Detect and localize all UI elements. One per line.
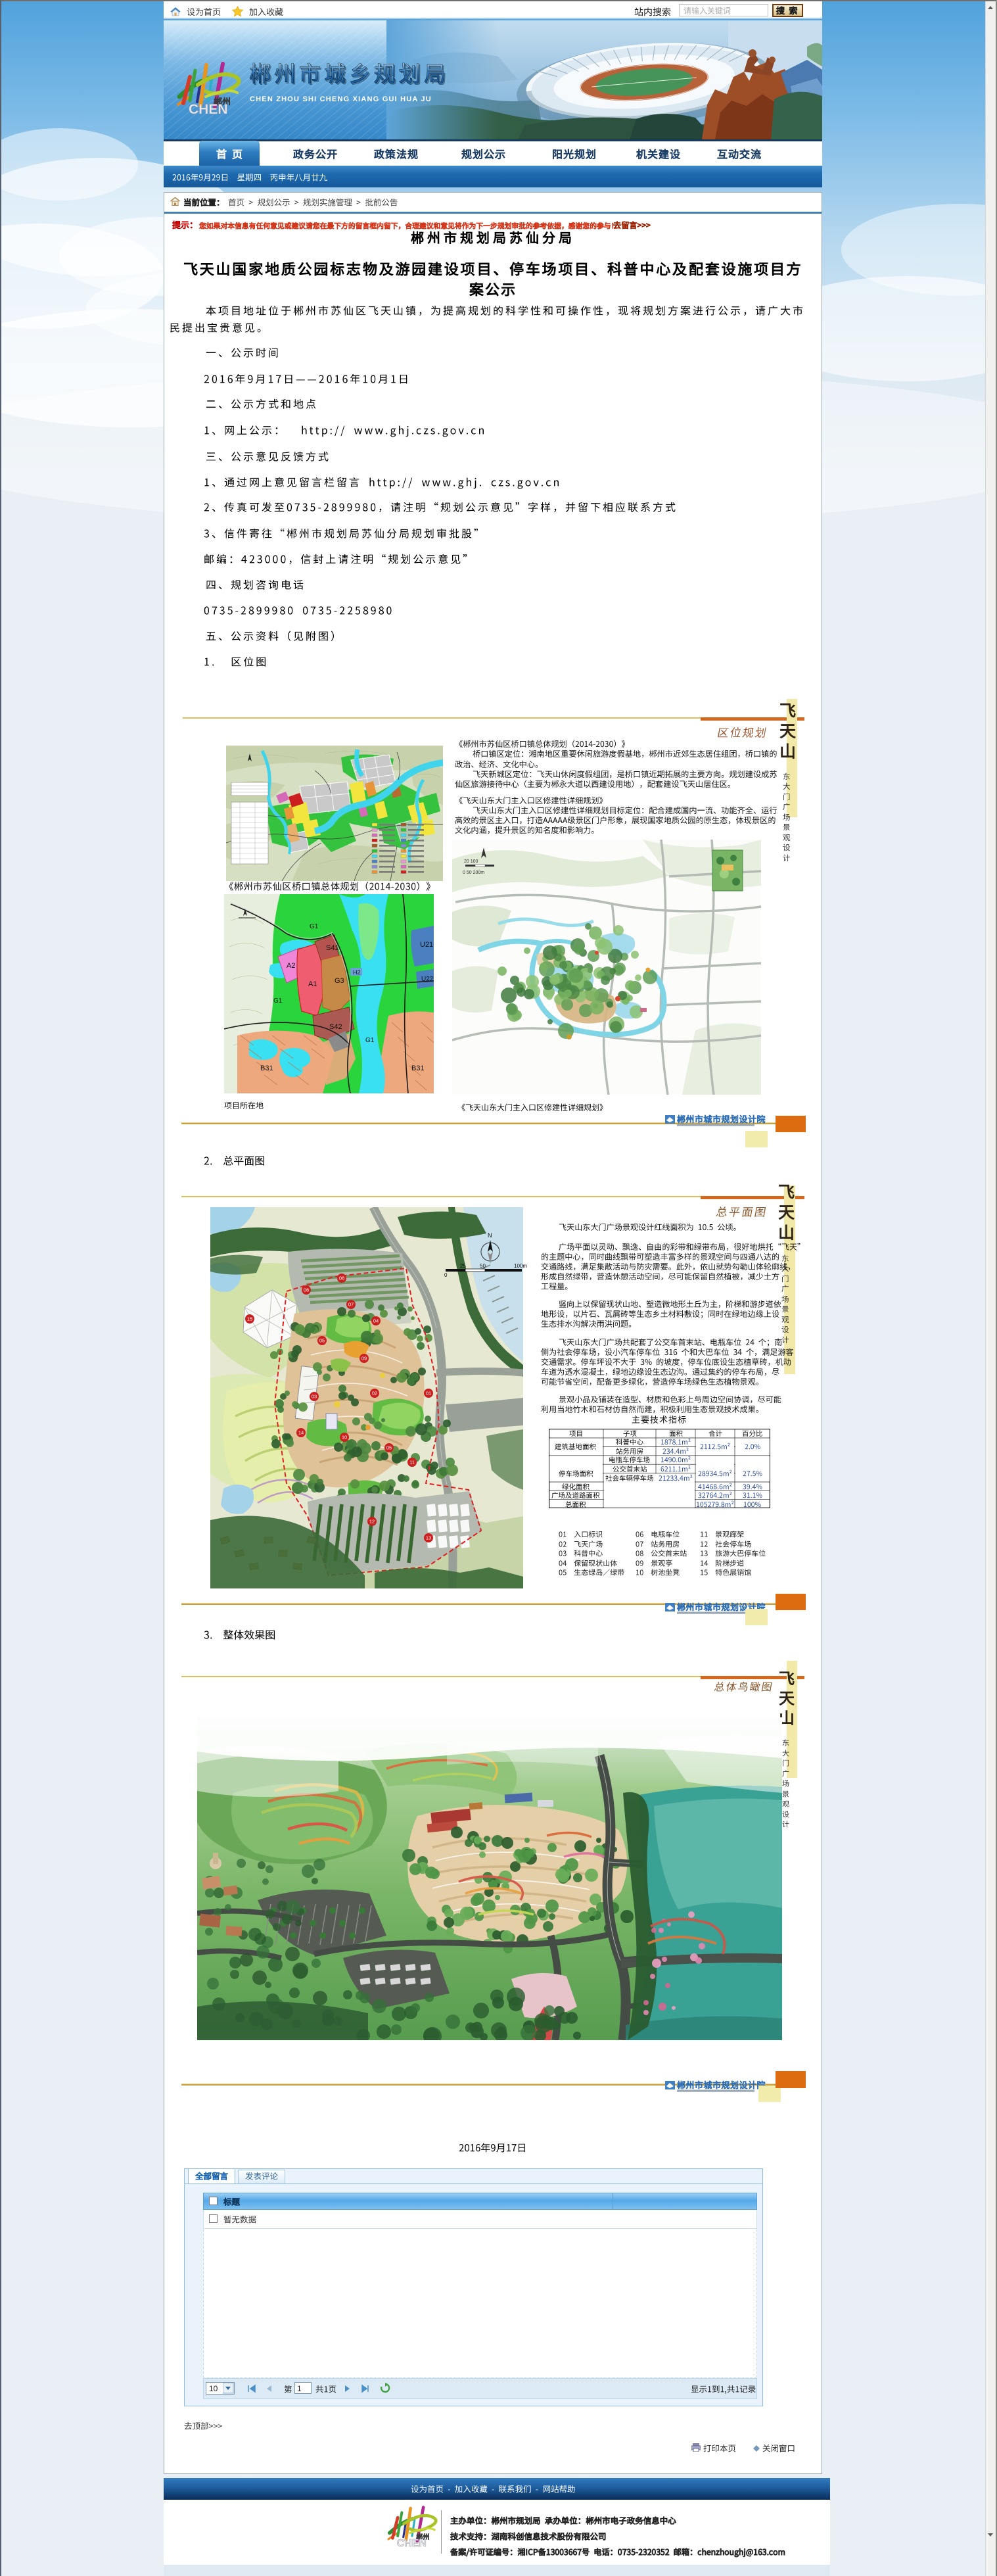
svg-text:11: 11 [409,1460,415,1466]
svg-text:U21: U21 [420,941,433,949]
svg-text:G1: G1 [365,1037,375,1044]
svg-text:25: 25 [460,1264,466,1269]
svg-text:05: 05 [386,1445,392,1451]
svg-text:05: 05 [319,1338,325,1344]
svg-text:09: 09 [361,1356,367,1362]
svg-text:G1: G1 [273,997,283,1005]
svg-text:15: 15 [247,1316,252,1322]
svg-text:CHEN: CHEN [189,102,228,117]
svg-text:B31: B31 [260,1064,273,1072]
svg-text:06: 06 [304,1287,309,1293]
svg-text:A2: A2 [287,962,295,970]
svg-text:04: 04 [373,1318,379,1324]
svg-text:H2: H2 [353,969,361,976]
svg-text:10: 10 [342,1435,347,1441]
svg-text:12: 12 [369,1519,375,1525]
svg-text:U22: U22 [421,976,434,983]
svg-text:01: 01 [426,1391,431,1396]
svg-text:14: 14 [298,1430,304,1436]
svg-text:02: 02 [372,1391,377,1396]
svg-text:A1: A1 [308,980,317,988]
svg-text:100m: 100m [514,1264,527,1269]
svg-text:08: 08 [339,1276,344,1281]
svg-text:20 100: 20 100 [464,859,478,864]
svg-text:0 50 200m: 0 50 200m [463,871,484,875]
svg-text:G1: G1 [310,923,319,930]
svg-text:S42: S42 [329,1023,342,1031]
svg-text:07: 07 [348,1302,354,1308]
svg-text:50: 50 [480,1264,486,1269]
svg-text:B31: B31 [411,1064,425,1072]
svg-text:CHEN: CHEN [397,2538,427,2549]
svg-text:03: 03 [312,1394,317,1400]
svg-text:G3: G3 [335,977,344,985]
svg-text:S41: S41 [326,944,339,952]
svg-text:13: 13 [426,1535,431,1541]
svg-text:0: 0 [444,1272,448,1278]
svg-text:N: N [488,1232,492,1239]
